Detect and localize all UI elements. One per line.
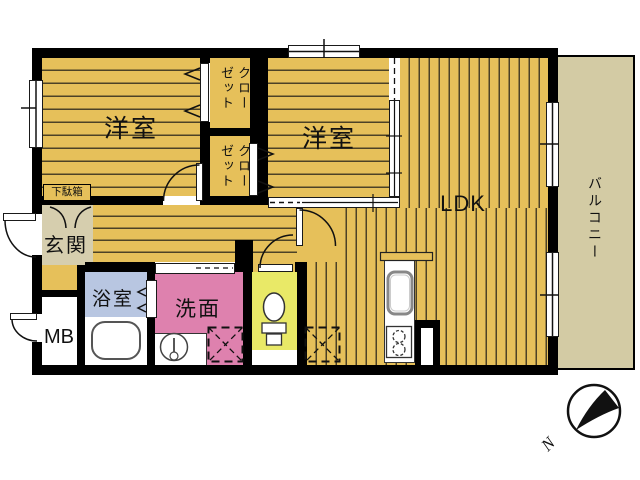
- ldk-door-leaf: [296, 208, 303, 246]
- ldk-doorway-floor: [297, 208, 337, 262]
- floor-plan: 洋室 洋室 LDK 玄関 浴室 洗面 MB クローゼット クローゼット バルコニ…: [0, 0, 640, 480]
- toilet-door-leaf: [258, 264, 293, 272]
- bedroom1-label: 洋室: [91, 109, 171, 145]
- kitchen-counter: [384, 260, 415, 363]
- hallway-floor: [93, 205, 297, 262]
- toilet-floor: [252, 272, 297, 350]
- bedroom1-door-leaf: [196, 163, 203, 201]
- wall: [360, 48, 558, 58]
- washroom-label: 洗面: [158, 293, 238, 323]
- wall: [297, 272, 307, 365]
- wall: [85, 262, 155, 272]
- ldk-floor-upper: [400, 58, 548, 208]
- window-left: [29, 80, 43, 148]
- bathtub-zone: [85, 317, 147, 365]
- entry-door-leaf: [3, 213, 36, 221]
- wall: [32, 148, 42, 214]
- ldk-label: LDK: [424, 191, 502, 217]
- kitchen-stub-slot: [421, 328, 433, 365]
- wall: [258, 58, 268, 205]
- shoe-cabinet-label: 下駄箱: [43, 184, 91, 201]
- wall: [147, 318, 155, 365]
- compass-icon: N: [537, 385, 620, 456]
- bedroom2-label: 洋室: [289, 119, 369, 155]
- entrance-label: 玄関: [36, 229, 96, 258]
- wall: [548, 337, 558, 375]
- closet2-label: クローゼット: [206, 144, 252, 192]
- window-balcony-2: [546, 252, 559, 337]
- toilet-door-zone: [252, 350, 297, 365]
- washroom-sink-counter: [155, 333, 207, 365]
- wall: [200, 196, 258, 205]
- window-balcony-1: [546, 102, 559, 187]
- window-top: [288, 45, 360, 58]
- entrance-side-floor: [42, 265, 77, 290]
- wall: [32, 48, 288, 58]
- closet1-label: クローゼット: [206, 66, 252, 114]
- wall: [548, 187, 558, 252]
- sliding-door-bedroom2-bottom: [268, 197, 400, 208]
- wall: [235, 240, 253, 272]
- wall: [243, 272, 252, 365]
- wall: [147, 262, 155, 280]
- wall: [32, 290, 77, 297]
- bath-label: 浴室: [78, 284, 148, 311]
- meter-box-door-leaf: [10, 313, 37, 320]
- bedroom1-door-sill: [163, 196, 200, 205]
- wall: [32, 365, 558, 375]
- wall: [32, 255, 42, 314]
- meter-box-label: MB: [36, 326, 82, 349]
- wall: [77, 265, 85, 365]
- sliding-door-bedroom2-right: [389, 100, 400, 197]
- compass-north-label: N: [537, 432, 560, 455]
- wall: [295, 262, 307, 272]
- bedroom2-ldk-open-boundary: [389, 58, 400, 100]
- balcony-label: バルコニー: [587, 176, 605, 266]
- washroom-folding-door: [155, 263, 235, 274]
- wall: [32, 48, 42, 80]
- wall: [548, 48, 558, 102]
